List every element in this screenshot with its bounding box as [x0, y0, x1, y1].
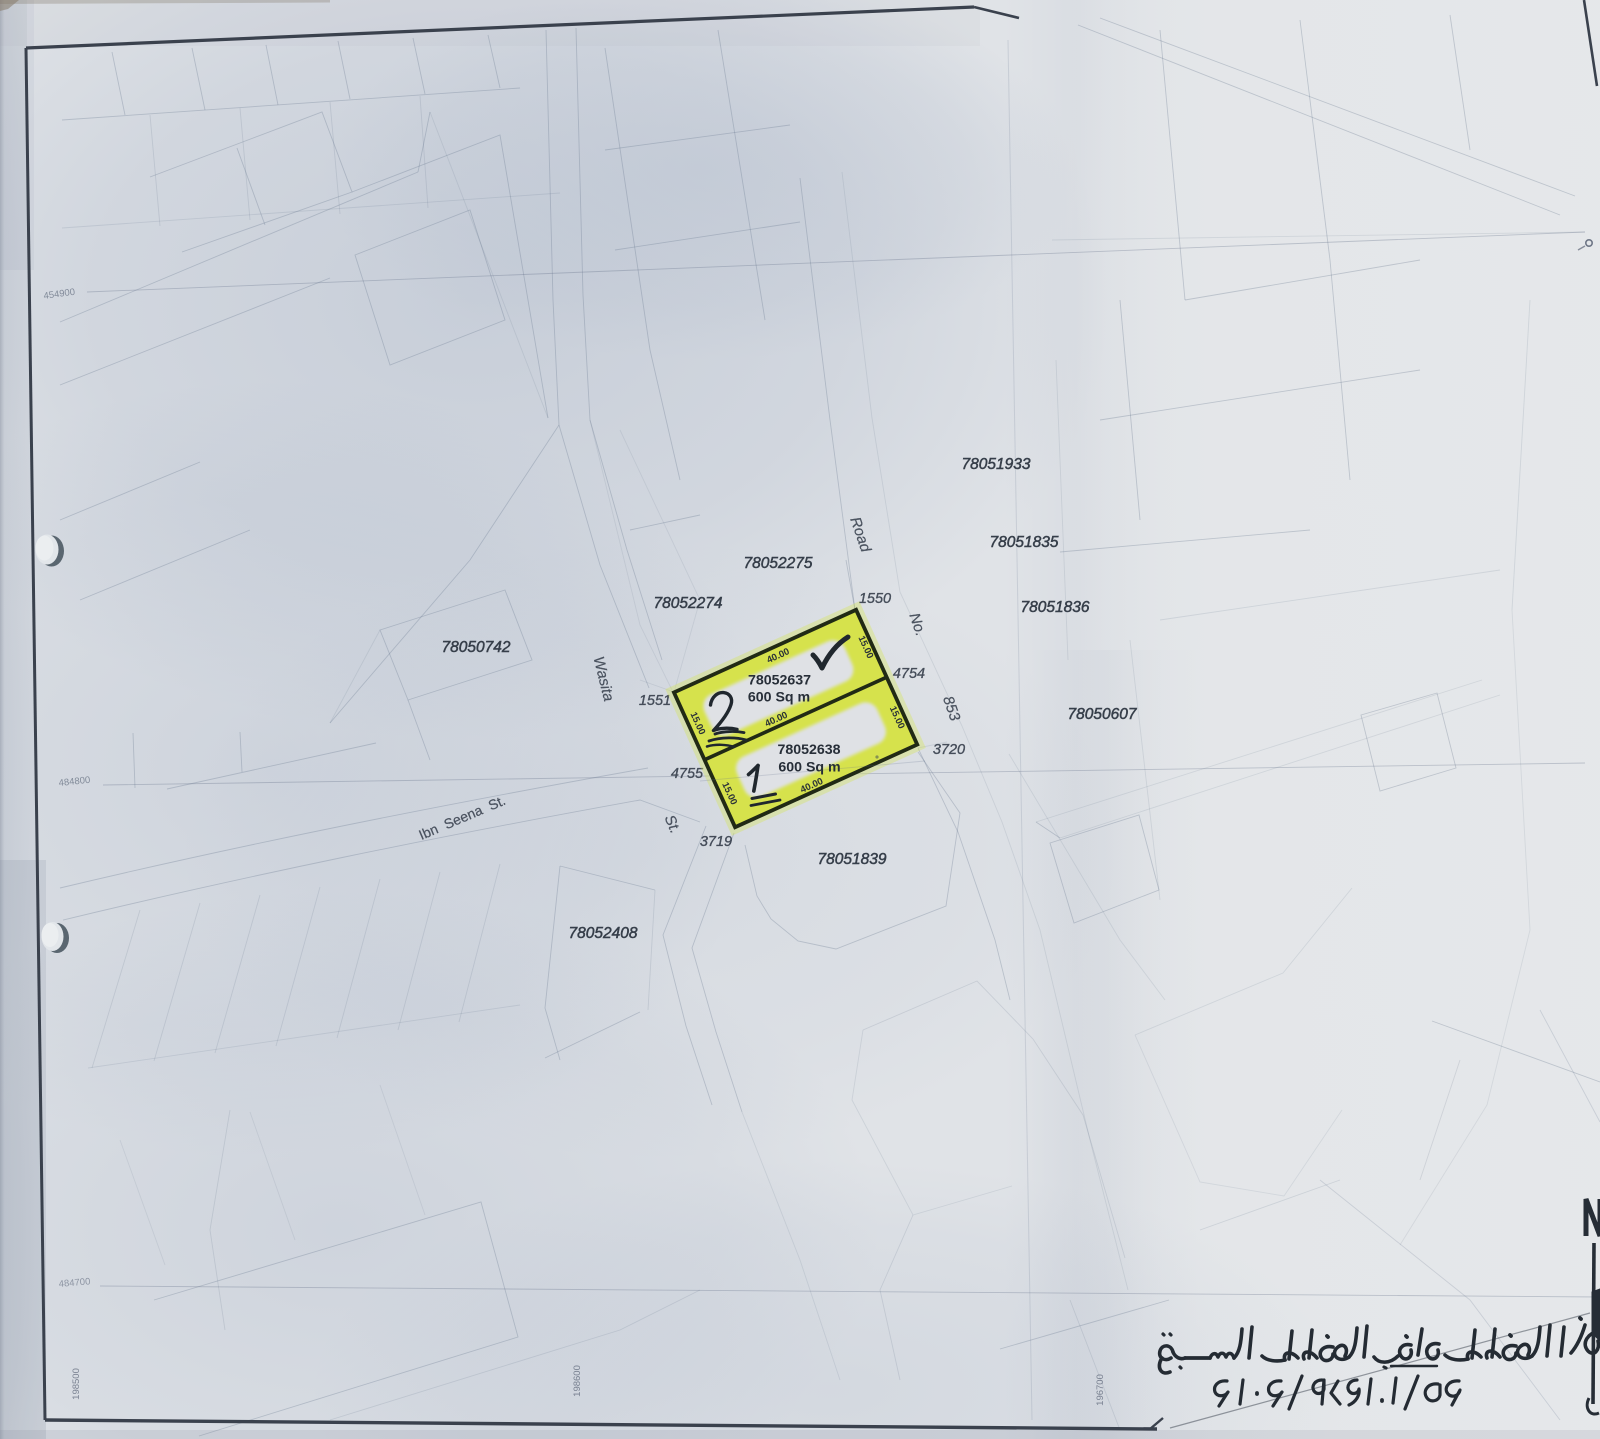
svg-text:78052275: 78052275 [744, 555, 813, 572]
svg-text:78052637: 78052637 [748, 673, 811, 689]
svg-text:78050607: 78050607 [1068, 706, 1138, 723]
svg-text:196700: 196700 [1095, 1374, 1106, 1406]
svg-text:600 Sq m: 600 Sq m [748, 690, 810, 706]
svg-text:78052638: 78052638 [777, 742, 840, 758]
svg-text:78051836: 78051836 [1021, 599, 1090, 616]
svg-text:600 Sq m: 600 Sq m [778, 760, 840, 776]
svg-text:78051839: 78051839 [818, 851, 887, 868]
svg-text:1551: 1551 [639, 693, 671, 709]
svg-text:78052274: 78052274 [654, 595, 723, 612]
svg-text:3719: 3719 [700, 834, 732, 850]
svg-text:4755: 4755 [671, 766, 704, 782]
svg-text:3720: 3720 [933, 742, 965, 758]
svg-text:198600: 198600 [572, 1365, 583, 1397]
svg-text:78051835: 78051835 [990, 534, 1059, 551]
svg-text:198500: 198500 [71, 1368, 82, 1400]
svg-text:1550: 1550 [859, 591, 891, 607]
svg-text:78050742: 78050742 [442, 639, 511, 656]
svg-text:78052408: 78052408 [569, 925, 638, 942]
svg-text:78051933: 78051933 [962, 456, 1031, 473]
svg-text:4754: 4754 [893, 666, 925, 682]
